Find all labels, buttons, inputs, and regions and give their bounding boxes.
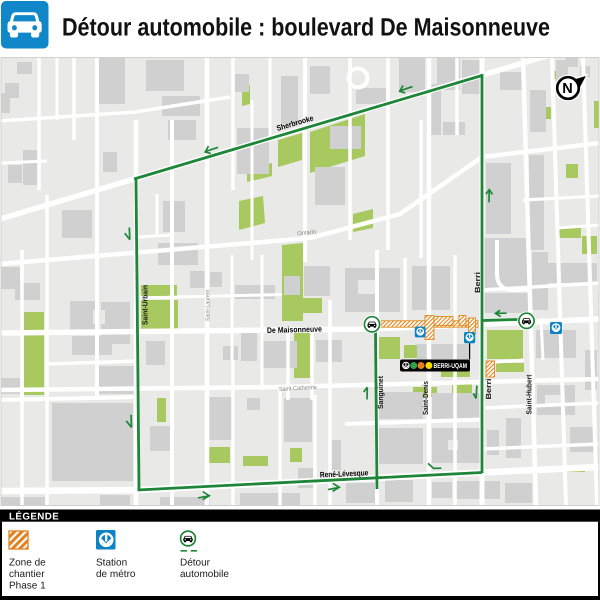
- svg-text:Berri: Berri: [484, 379, 493, 400]
- svg-text:N: N: [562, 81, 572, 97]
- svg-text:BERRI-UQAM: BERRI-UQAM: [434, 363, 468, 370]
- svg-text:Berri: Berri: [473, 272, 482, 293]
- svg-text:Saint-Laurent: Saint-Laurent: [205, 290, 212, 321]
- svg-text:Détour automobile : boulevard: Détour automobile : boulevard De Maisonn…: [62, 13, 550, 41]
- svg-text:chantier: chantier: [9, 569, 45, 580]
- svg-text:De Maisonneuve: De Maisonneuve: [267, 325, 323, 335]
- svg-text:Sanguinet: Sanguinet: [376, 376, 385, 409]
- svg-text:automobile: automobile: [180, 569, 229, 580]
- svg-text:Saint-Hubert: Saint-Hubert: [525, 374, 534, 414]
- svg-text:Phase 1: Phase 1: [9, 581, 46, 592]
- svg-text:Saint-Denis: Saint-Denis: [421, 381, 430, 415]
- svg-text:Station: Station: [96, 558, 127, 569]
- svg-text:Saint-Urbain: Saint-Urbain: [141, 285, 150, 325]
- svg-text:Détour: Détour: [180, 558, 211, 569]
- svg-text:LÉGENDE: LÉGENDE: [9, 510, 59, 522]
- svg-text:Zone de: Zone de: [9, 558, 46, 569]
- svg-text:de métro: de métro: [96, 569, 136, 580]
